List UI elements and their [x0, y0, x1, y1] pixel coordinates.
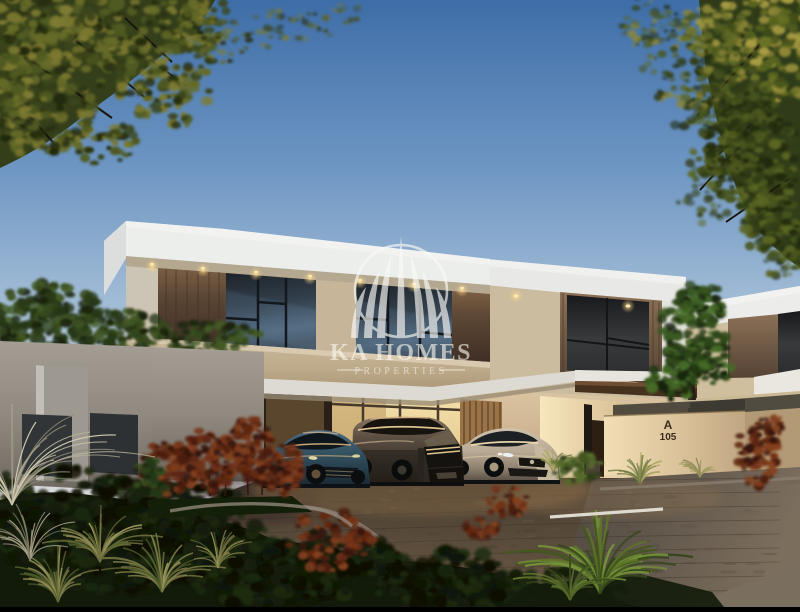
svg-text:PROPERTIES: PROPERTIES	[354, 366, 447, 377]
svg-text:105: 105	[660, 432, 677, 443]
svg-text:A: A	[664, 418, 673, 432]
svg-text:KA HOMES: KA HOMES	[330, 340, 472, 366]
